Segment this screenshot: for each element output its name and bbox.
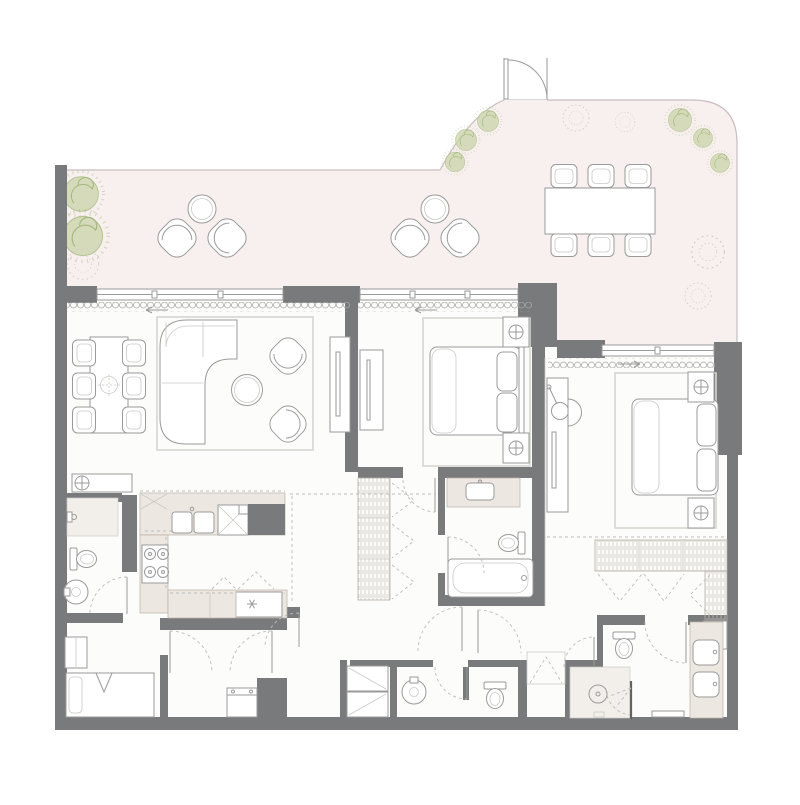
terrace-entry-door <box>504 58 547 100</box>
wardrobe-run <box>595 540 727 571</box>
floor-plan-page <box>0 0 800 800</box>
wall-segment <box>532 297 545 606</box>
single-bed <box>66 673 154 717</box>
wall-segment <box>395 660 433 667</box>
outdoor-dining-set <box>545 165 655 257</box>
headboard <box>519 345 524 437</box>
wall-segment <box>257 678 287 718</box>
wall-segment <box>160 618 287 630</box>
bench <box>652 711 684 717</box>
wall-segment <box>565 660 597 667</box>
pillow <box>497 393 517 432</box>
outdoor-dining-table <box>545 188 655 234</box>
washing-machine <box>227 688 257 717</box>
floor-plan-drawing <box>0 0 800 800</box>
wall-segment <box>463 667 469 700</box>
wall-segment <box>727 450 738 720</box>
pillow <box>497 352 517 391</box>
bedside-unit <box>503 317 529 347</box>
wall-segment <box>557 340 605 358</box>
shower-valve <box>67 512 72 522</box>
double-vanity <box>690 622 723 718</box>
wall-segment <box>468 660 520 667</box>
cooktop <box>142 545 169 583</box>
wall-segment <box>518 660 527 717</box>
shower-tray <box>67 498 118 536</box>
master-bedroom-window <box>602 345 714 356</box>
wall-segment <box>438 478 445 535</box>
refrigerator <box>236 592 282 617</box>
round-basin <box>64 580 88 604</box>
wall-segment <box>55 717 738 730</box>
wall-segment <box>340 660 347 717</box>
laundry-closet <box>347 666 388 717</box>
pillow <box>697 449 716 491</box>
master-curtain <box>548 358 715 368</box>
fan-coil-unit <box>72 474 132 492</box>
wall-segment <box>122 495 137 572</box>
wall-segment <box>358 467 403 478</box>
service-column <box>248 504 285 535</box>
wall-segment <box>390 660 397 717</box>
wall-segment <box>597 615 645 625</box>
bedside-unit <box>503 433 529 463</box>
tall-cabinet <box>218 505 248 535</box>
pillow <box>697 404 716 446</box>
bedside-unit <box>688 372 714 402</box>
bedroom2-curtain <box>358 302 532 312</box>
bedside-unit <box>688 498 714 528</box>
wall-segment <box>67 613 123 623</box>
wall-segment <box>160 655 168 717</box>
tv-sideboard <box>330 337 350 432</box>
wardrobe <box>65 637 87 668</box>
bathtub <box>448 559 533 597</box>
living-curtain <box>67 302 350 312</box>
wall-segment <box>438 467 545 478</box>
coffee-table <box>232 375 263 406</box>
vanity <box>447 478 520 507</box>
wall-segment <box>55 286 97 303</box>
bedroom2-window <box>360 289 518 300</box>
wall-segment <box>565 667 570 718</box>
living-room-window <box>97 289 283 300</box>
hallway-west <box>227 688 257 717</box>
tv-panel <box>360 350 383 430</box>
wall-segment <box>287 607 300 618</box>
